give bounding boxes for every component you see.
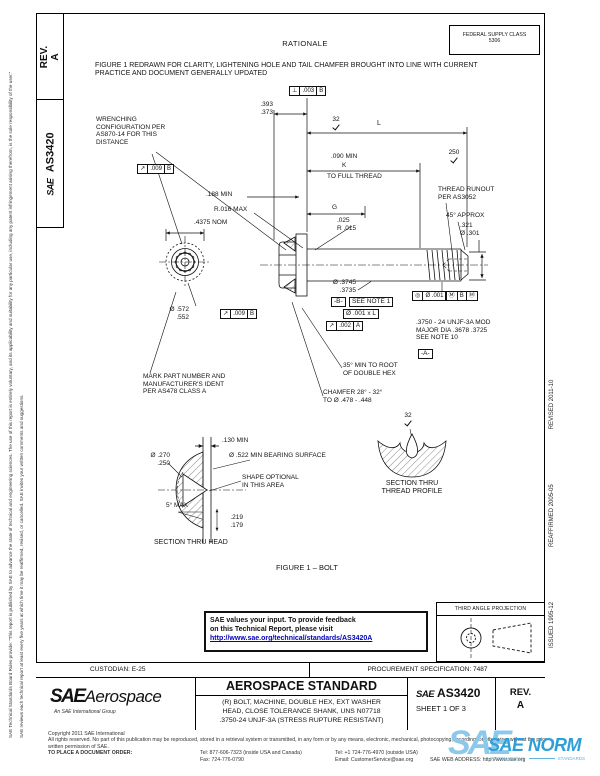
rev-title: REV. bbox=[496, 687, 545, 698]
sae-norm-watermark: SAE SAE NORM INTERNATIONAL STANDARDS bbox=[448, 722, 600, 774]
doc-number: AS3420 bbox=[437, 686, 480, 700]
federal-supply-class-box: FEDERAL SUPPLY CLASS 5306 bbox=[449, 25, 540, 55]
left-margin-disclaimer-1: SAE Technical Standards Board Rules prov… bbox=[8, 72, 13, 738]
rationale-title: RATIONALE bbox=[230, 40, 380, 49]
tel-outside: Tel: +1 724-776-4970 (outside USA) bbox=[335, 750, 418, 756]
sheet-number: SHEET 1 OF 3 bbox=[416, 704, 495, 713]
label-section-thru-head: SECTION THRU HEAD bbox=[154, 539, 228, 547]
surface-finish-32-shank: 32 bbox=[328, 116, 344, 130]
standard-title: AEROSPACE STANDARD bbox=[196, 678, 407, 696]
dim-head-depth: .219 .179 bbox=[221, 514, 243, 529]
standard-description: (R) BOLT, MACHINE, DOUBLE HEX, EXT WASHE… bbox=[196, 696, 407, 726]
surface-finish-check-icon bbox=[404, 419, 411, 427]
dim-lightening-hole: .321 Ø .301 bbox=[460, 222, 480, 237]
rationale-text: FIGURE 1 REDRAWN FOR CLARITY, LIGHTENING… bbox=[95, 62, 545, 79]
feedback-box: SAE values your input. To provide feedba… bbox=[204, 611, 428, 652]
left-margin-disclaimer-2: SAE reviews each technical report at lea… bbox=[19, 394, 24, 738]
aerospace-logo-text: Aerospace bbox=[85, 687, 162, 706]
reaffirmed-date: REAFFIRMED 2005-05 bbox=[549, 484, 555, 547]
callout-chamfer: CHAMFER 28° - 32° TO Ø .478 - .448 bbox=[323, 389, 382, 404]
sidebar-doc-label: SAE AS3420 bbox=[41, 132, 59, 195]
sae-logo-small: SAE bbox=[46, 178, 56, 195]
watermark-subtitle: INTERNATIONAL STANDARDS bbox=[490, 756, 585, 761]
surface-finish-check-icon bbox=[332, 123, 339, 131]
dim-shank-dia: Ø .3745 .3735 bbox=[324, 279, 356, 294]
mmc-icon: Ⓜ bbox=[466, 291, 478, 301]
sidebar-rev-label: REV. A bbox=[39, 45, 61, 67]
fcf-perpendicularity-003: ⊥ .003 B bbox=[290, 86, 326, 96]
dim-flange-dia: Ø .572 .552 bbox=[161, 306, 189, 321]
figure-title: FIGURE 1 – BOLT bbox=[248, 564, 366, 573]
revision-history: ISSUED 1995-12 REAFFIRMED 2005-05 REVISE… bbox=[549, 380, 555, 648]
callout-thread-spec: .3750 - 24 UNJF-3A MOD MAJOR DIA .3678 .… bbox=[416, 319, 490, 342]
callout-wrenching-config: WRENCHING CONFIGURATION PER AS870-14 FOR… bbox=[96, 116, 165, 147]
email-line: Email: CustomerService@sae.org bbox=[335, 757, 413, 763]
callout-thread-runout: THREAD RUNOUT PER AS3052 bbox=[438, 186, 494, 201]
feedback-link[interactable]: http://www.sae.org/technical/standards/A… bbox=[210, 635, 372, 642]
datum-b-box: -B- bbox=[331, 297, 346, 307]
callout-35-root: 35° MIN TO ROOT OF DOUBLE HEX bbox=[343, 362, 398, 377]
third-angle-projection-icon bbox=[437, 616, 543, 660]
surface-finish-250: 250 bbox=[446, 149, 462, 163]
sae-norm-text: SAE NORM bbox=[488, 735, 581, 756]
sae-logo: SAE bbox=[50, 686, 85, 707]
callout-mark-part-number: MARK PART NUMBER AND MANUFACTURER'S IDEN… bbox=[143, 373, 225, 396]
dim-hole-dia: Ø .270 .250 bbox=[144, 452, 170, 467]
fcf-runout-009-head: ↗ .009 B bbox=[138, 164, 174, 174]
revised-date: REVISED 2011-10 bbox=[549, 380, 555, 430]
callout-45-approx: 45° APPROX bbox=[446, 212, 484, 220]
watermark-divider bbox=[529, 758, 555, 759]
feedback-line-2: on this Technical Report, please visit bbox=[210, 625, 422, 634]
frame-001-x-l: Ø .001 x L bbox=[343, 309, 379, 319]
fax-line: Fax: 724-776-0790 bbox=[200, 757, 244, 763]
logo-subtitle: An SAE International Group bbox=[54, 709, 195, 715]
fcf-concentricity: ◎ Ø .001 Ⓜ B Ⓜ bbox=[413, 291, 478, 301]
rev-value: A bbox=[496, 700, 545, 711]
dim-4375-nom: .4375 NOM bbox=[194, 219, 227, 227]
dim-188-min: .188 MIN bbox=[206, 191, 232, 199]
tel-inside: Tel: 877-606-7323 (inside USA and Canada… bbox=[200, 750, 302, 756]
callout-see-note-1: SEE NOTE 1 bbox=[349, 297, 393, 307]
callout-r016-max: R.016 MAX bbox=[214, 206, 247, 214]
third-angle-projection-box: THIRD ANGLE PROJECTION bbox=[436, 602, 545, 662]
sidebar-doc-box: SAE AS3420 bbox=[36, 99, 64, 228]
dim-130-min: .130 MIN bbox=[222, 437, 248, 445]
dim-k: K bbox=[342, 162, 346, 170]
issued-date: ISSUED 1995-12 bbox=[549, 602, 555, 648]
projection-label: THIRD ANGLE PROJECTION bbox=[437, 603, 544, 616]
doc-number-vertical: AS3420 bbox=[45, 132, 57, 172]
datum-a-box: -A- bbox=[418, 349, 433, 359]
feedback-line-1: SAE values your input. To provide feedba… bbox=[210, 616, 422, 625]
fcf-runout-002: ↗ .002 A bbox=[327, 321, 363, 331]
surface-finish-32-thread: 32 bbox=[400, 412, 416, 426]
order-label: TO PLACE A DOCUMENT ORDER: bbox=[48, 750, 132, 756]
callout-shape-optional: SHAPE OPTIONAL IN THIS AREA bbox=[242, 474, 299, 489]
dim-5-max: 5° MAX bbox=[166, 502, 188, 510]
label-to-full-thread: TO FULL THREAD bbox=[327, 173, 382, 181]
procurement-cell: PROCUREMENT SPECIFICATION: 7487 bbox=[310, 663, 545, 677]
dim-090-min: .090 MIN bbox=[331, 153, 357, 161]
sidebar-rev-box: REV. A bbox=[36, 13, 64, 100]
dim-head-height: .393 .373 bbox=[246, 101, 273, 116]
sae-logo-mini: SAE bbox=[416, 689, 434, 700]
sae-aerospace-logo: SAEAerospace An SAE International Group bbox=[36, 678, 196, 730]
standard-cell: AEROSPACE STANDARD (R) BOLT, MACHINE, DO… bbox=[196, 678, 408, 730]
fcf-runout-009-flange: ↗ .009 B bbox=[221, 309, 257, 319]
custodian-cell: CUSTODIAN: E-25 bbox=[36, 663, 310, 677]
dim-g: G bbox=[332, 204, 337, 212]
dim-overall-length: L bbox=[377, 120, 381, 128]
dim-fillet: .025 R .015 bbox=[337, 217, 356, 232]
sae-standard-sheet: SAE Technical Standards Board Rules prov… bbox=[0, 0, 600, 776]
label-section-thru-thread: SECTION THRU THREAD PROFILE bbox=[374, 480, 450, 497]
surface-finish-check-icon bbox=[450, 156, 457, 164]
callout-bearing-surface: Ø .522 MIN BEARING SURFACE bbox=[229, 452, 326, 460]
